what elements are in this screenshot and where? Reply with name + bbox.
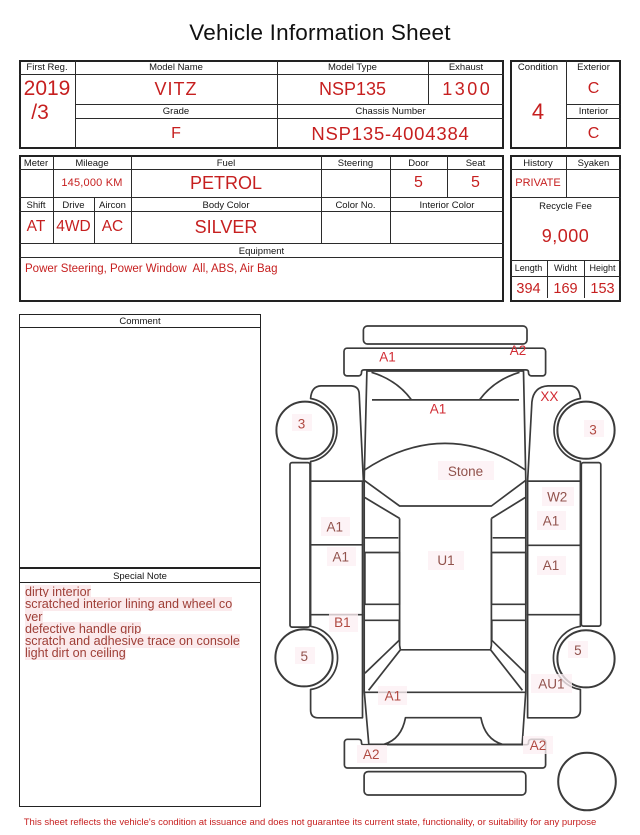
svg-text:A2: A2 (363, 747, 380, 762)
svg-text:A1: A1 (379, 349, 396, 364)
svg-text:A1: A1 (543, 513, 560, 528)
svg-text:3: 3 (589, 422, 597, 437)
svg-text:A1: A1 (385, 688, 402, 703)
svg-text:3: 3 (298, 416, 306, 431)
svg-text:A1: A1 (327, 519, 344, 534)
svg-text:B1: B1 (334, 615, 351, 630)
svg-text:A1: A1 (332, 549, 349, 564)
svg-text:A2: A2 (530, 738, 547, 753)
svg-text:5: 5 (301, 649, 309, 664)
svg-text:W2: W2 (547, 489, 567, 504)
svg-text:A2: A2 (510, 343, 527, 358)
svg-text:5: 5 (574, 643, 582, 658)
svg-text:A1: A1 (543, 558, 560, 573)
svg-text:Stone: Stone (448, 464, 483, 479)
svg-text:XX: XX (540, 389, 558, 404)
svg-text:U1: U1 (437, 553, 454, 568)
svg-text:A1: A1 (430, 401, 447, 416)
svg-text:AU1: AU1 (538, 676, 564, 691)
